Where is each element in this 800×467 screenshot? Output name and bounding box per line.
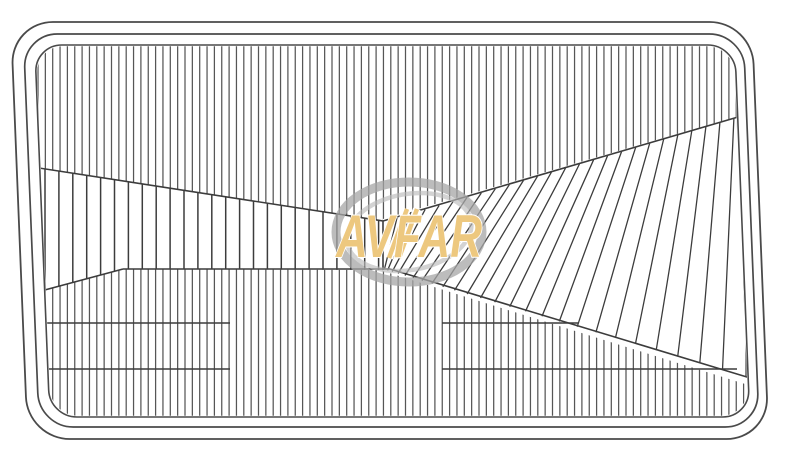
headlamp-lens-illustration: AVFAR	[0, 0, 800, 467]
logo-text: AVFAR	[335, 203, 482, 270]
band-region	[26, 166, 383, 295]
lens-drawing-svg: AVFAR	[0, 0, 800, 467]
avfar-logo: AVFAR	[335, 182, 482, 282]
